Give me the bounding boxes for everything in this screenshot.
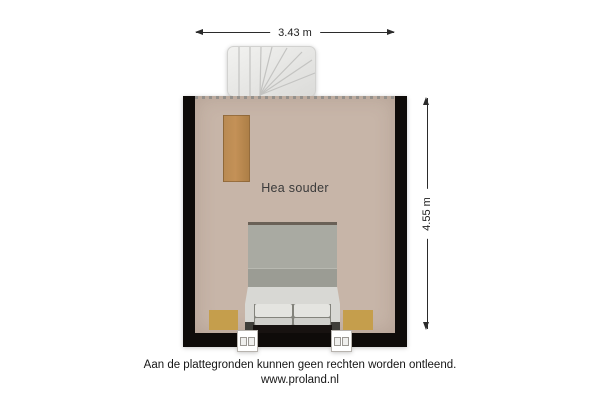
- window-pane: [248, 337, 255, 346]
- floorplan-page: 3.43 m 4.55 m: [0, 0, 600, 400]
- wall-left: [183, 96, 195, 347]
- sideboard: [223, 115, 250, 182]
- staircase-drawing: [227, 46, 316, 97]
- bed-pillow-row: [254, 304, 331, 326]
- window-pane: [240, 337, 247, 346]
- bed-duvet-fold: [248, 268, 337, 287]
- room-label: Hea souder: [195, 181, 395, 195]
- wall-right: [395, 96, 407, 347]
- nightstand-left: [209, 310, 238, 330]
- wall-bottom: [183, 333, 407, 347]
- bed: [245, 222, 340, 334]
- window-right: [331, 330, 352, 352]
- staircase: [227, 46, 316, 97]
- floorplan: Hea souder: [0, 0, 600, 400]
- footer: Aan de plattegronden kunnen geen rechten…: [0, 358, 600, 388]
- window-left: [237, 330, 258, 352]
- pillow-left: [255, 304, 292, 326]
- window-pane: [334, 337, 341, 346]
- bed-duvet: [248, 225, 337, 268]
- nightstand-right: [343, 310, 373, 330]
- website-text: www.proland.nl: [0, 373, 600, 388]
- disclaimer-text: Aan de plattegronden kunnen geen rechten…: [0, 358, 600, 373]
- bed-frame: [245, 287, 340, 304]
- window-pane: [342, 337, 349, 346]
- stair-opening-edge: [195, 96, 395, 99]
- pillow-right: [294, 304, 331, 326]
